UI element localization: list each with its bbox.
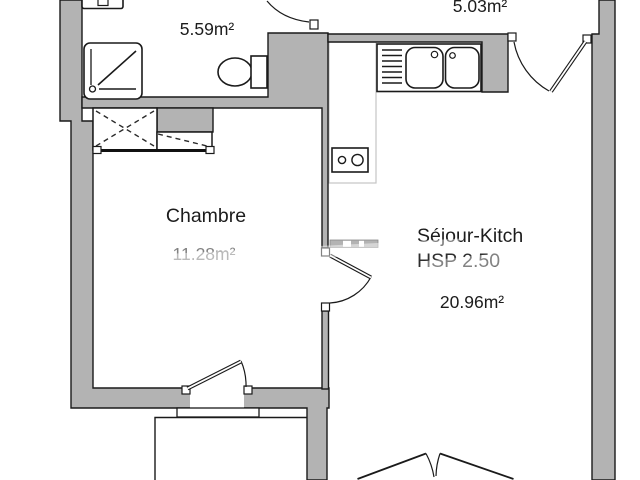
bedroom-name-label: Chambre (166, 207, 246, 227)
entry-door (514, 42, 586, 92)
shower-icon (84, 43, 142, 99)
partition-lower (322, 311, 329, 389)
entry-area-label: 5.03m² (453, 0, 507, 16)
living-name-label: Séjour-Kitch (417, 227, 523, 247)
washbasin-icon (82, 0, 123, 9)
floor-plan: 5.59m² 5.03m² Chambre 11.28m² Séjour-Kit… (0, 0, 640, 480)
double-sink-icon (377, 44, 481, 92)
bedroom-area-label: 11.28m² (173, 246, 236, 264)
lower-room-outline (155, 418, 307, 480)
living-room-door (330, 256, 371, 304)
right-wall (592, 0, 615, 480)
living-area-label: 20.96m² (440, 294, 504, 312)
cooktop-icon (332, 148, 368, 172)
bathroom-door (267, 1, 309, 22)
balcony-double-door (358, 454, 514, 480)
closet-wall-chunk (157, 108, 213, 132)
toilet-icon (218, 56, 267, 88)
striped-bar (330, 240, 378, 248)
floor-plan-drawing (0, 0, 640, 480)
bedroom-door (188, 361, 247, 389)
living-ceiling-height-label: HSP 2.50 (417, 252, 500, 272)
bedroom-door-opening (190, 387, 244, 409)
bathroom-area-label: 5.59m² (180, 21, 234, 39)
door-threshold (177, 408, 259, 417)
